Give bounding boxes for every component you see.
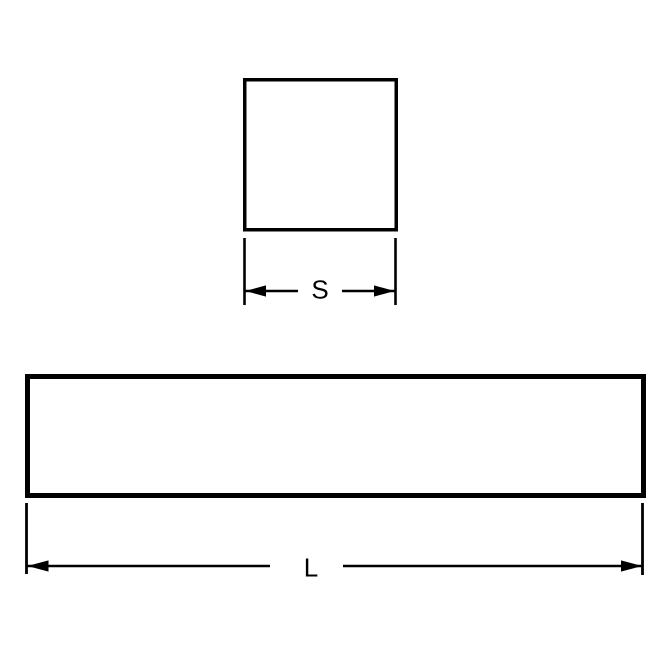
bar-side-view-outline bbox=[28, 377, 644, 496]
l-arrowhead-right-icon bbox=[621, 560, 642, 571]
diagram-canvas: S L bbox=[0, 0, 670, 670]
l-arrowhead-left-icon bbox=[28, 560, 49, 571]
key-steel-dimension-drawing: S L bbox=[0, 0, 670, 670]
s-dimension-label: S bbox=[311, 275, 328, 305]
s-arrowhead-right-icon bbox=[374, 285, 395, 296]
l-dimension-label: L bbox=[304, 553, 318, 583]
s-arrowhead-left-icon bbox=[246, 285, 267, 296]
square-cross-section-outline bbox=[245, 80, 397, 230]
